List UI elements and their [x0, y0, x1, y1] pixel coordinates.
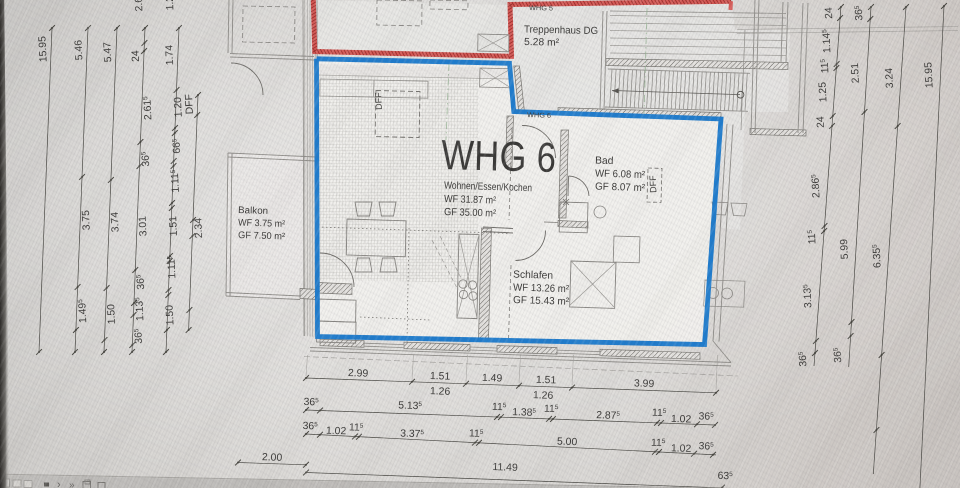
svg-text:Bad: Bad: [595, 156, 614, 168]
svg-text:3.99: 3.99: [634, 378, 655, 390]
svg-text:6.355: 6.355: [871, 244, 883, 269]
svg-text:3.75: 3.75: [81, 210, 93, 231]
svg-text:DFF: DFF: [373, 92, 384, 110]
svg-text:115: 115: [492, 402, 507, 414]
svg-text:2.34: 2.34: [193, 218, 205, 239]
svg-text:GF 15.43 m²: GF 15.43 m²: [513, 295, 570, 308]
svg-text:WHG 5: WHG 5: [529, 5, 553, 13]
svg-text:5.99: 5.99: [839, 239, 851, 260]
svg-text:24: 24: [824, 7, 836, 19]
svg-text:11.49: 11.49: [492, 462, 518, 474]
svg-text:115: 115: [544, 404, 559, 416]
svg-text:5.47: 5.47: [102, 42, 114, 63]
svg-text:1.50: 1.50: [165, 305, 177, 326]
svg-text:1.385: 1.385: [512, 407, 537, 419]
svg-text:›: ›: [57, 479, 61, 488]
svg-text:Balkon: Balkon: [238, 205, 268, 217]
svg-text:1.02: 1.02: [671, 443, 692, 455]
svg-text:1.49: 1.49: [482, 373, 503, 385]
svg-text:1.495: 1.495: [77, 299, 89, 324]
svg-text:365: 365: [698, 411, 714, 423]
svg-text:365: 365: [798, 351, 810, 367]
svg-text:2.615: 2.615: [142, 96, 154, 121]
svg-text:365: 365: [303, 397, 319, 409]
svg-text:1.115: 1.115: [170, 169, 182, 193]
svg-text:Schlafen: Schlafen: [513, 270, 554, 282]
svg-text:1.2: 1.2: [165, 0, 177, 11]
svg-text:5.00: 5.00: [557, 436, 578, 448]
svg-text:115: 115: [469, 428, 484, 440]
svg-text:3.01: 3.01: [138, 216, 150, 237]
svg-text:2.875: 2.875: [596, 410, 621, 422]
svg-text:365: 365: [854, 5, 866, 21]
svg-text:WF 6.08 m²: WF 6.08 m²: [595, 169, 646, 182]
svg-text:1.135: 1.135: [134, 297, 146, 322]
svg-text:WHG 6: WHG 6: [441, 131, 557, 181]
svg-text:5.46: 5.46: [73, 40, 85, 61]
svg-text:115: 115: [820, 58, 832, 73]
svg-text:1.50: 1.50: [106, 304, 118, 325]
svg-text:115: 115: [652, 408, 667, 420]
svg-text:1.25: 1.25: [818, 82, 830, 103]
svg-text:365: 365: [302, 421, 318, 433]
svg-text:5.28 m²: 5.28 m²: [524, 37, 560, 49]
svg-text:GF 35.00 m²: GF 35.00 m²: [444, 207, 497, 220]
svg-text:DFF: DFF: [648, 175, 659, 193]
svg-text:1.26: 1.26: [430, 386, 451, 398]
svg-text:1.20: 1.20: [173, 97, 185, 118]
svg-text:DFF: DFF: [184, 94, 196, 115]
svg-text:24: 24: [130, 50, 142, 62]
svg-text:WF 31.87 m²: WF 31.87 m²: [444, 194, 497, 207]
svg-text:15.95: 15.95: [37, 36, 49, 63]
svg-text:WF 3.75 m²: WF 3.75 m²: [238, 218, 286, 230]
svg-text:1.51: 1.51: [536, 375, 557, 387]
svg-text:365: 365: [698, 441, 714, 453]
svg-text:365: 365: [832, 347, 844, 363]
svg-text:2.865: 2.865: [810, 174, 822, 199]
svg-text:635: 635: [717, 471, 733, 483]
svg-text:115: 115: [349, 422, 364, 434]
svg-text:5.135: 5.135: [398, 400, 423, 412]
svg-text:2.00: 2.00: [262, 452, 283, 464]
svg-text:1.51: 1.51: [430, 371, 451, 383]
svg-text:1.02: 1.02: [671, 414, 692, 426]
svg-text:115: 115: [651, 438, 666, 450]
svg-text:2.51: 2.51: [850, 63, 862, 84]
svg-text:1.115: 1.115: [166, 255, 178, 279]
svg-text:15.95: 15.95: [923, 62, 935, 89]
svg-text:GF 7.50 m²: GF 7.50 m²: [238, 230, 286, 242]
svg-text:Treppenhaus DG: Treppenhaus DG: [524, 25, 598, 38]
svg-text:1.74: 1.74: [164, 45, 176, 66]
svg-text:2.6: 2.6: [134, 0, 146, 12]
svg-text:1.51: 1.51: [168, 216, 180, 237]
svg-text:1.02: 1.02: [326, 426, 347, 438]
svg-text:115: 115: [807, 229, 819, 244]
svg-text:3.24: 3.24: [884, 68, 896, 89]
svg-text:3.375: 3.375: [400, 428, 425, 440]
svg-text:365: 365: [135, 274, 147, 290]
svg-text:1.26: 1.26: [533, 390, 554, 402]
svg-text:365: 365: [140, 151, 152, 167]
svg-text:2.99: 2.99: [348, 368, 369, 380]
svg-text:»: »: [69, 480, 75, 488]
svg-text:24: 24: [816, 116, 828, 128]
svg-text:365: 365: [133, 328, 145, 344]
svg-text:GF 8.07 m²: GF 8.07 m²: [595, 182, 646, 195]
svg-text:3.74: 3.74: [110, 212, 122, 233]
svg-text:WF 13.26 m²: WF 13.26 m²: [513, 283, 570, 296]
svg-text:WHG 6: WHG 6: [527, 112, 551, 120]
svg-text:3.135: 3.135: [802, 284, 814, 309]
svg-text:665: 665: [171, 138, 183, 154]
